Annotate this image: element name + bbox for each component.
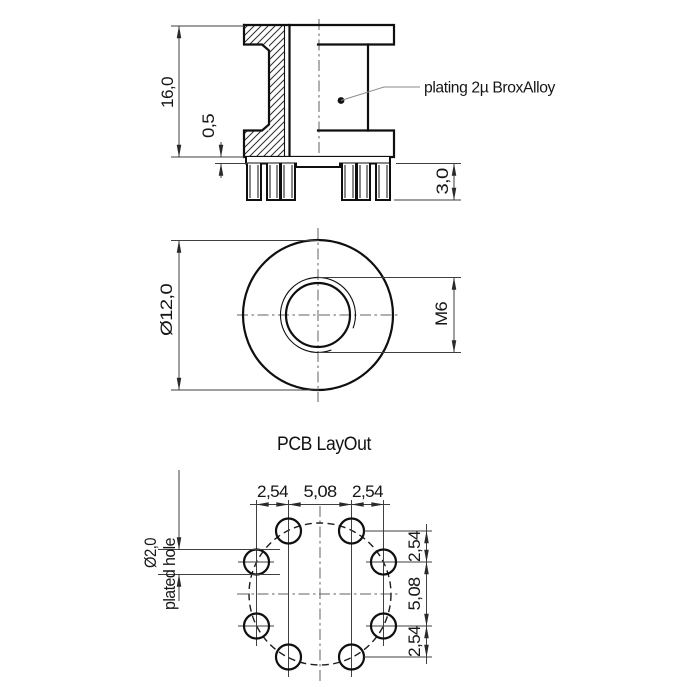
dim-standoff: 0,5: [199, 114, 248, 178]
dim-column-vertical: 2,54 5,08 2,54: [364, 524, 432, 664]
pin: [281, 164, 295, 201]
plating-note-label: plating 2µ BroxAlloy: [424, 80, 555, 97]
drawing-canvas: 16,0 0,5 3,0 plating 2µ BroxAlloy: [0, 0, 700, 700]
dim-thread-label: M6: [432, 302, 451, 326]
hole-type-label: plated hole: [160, 538, 179, 610]
pin-row: [246, 157, 390, 200]
dim-outer-diameter-label: Ø12,0: [157, 284, 176, 336]
top-plan-view: Ø12,0 M6: [157, 228, 461, 402]
dim-v-pitch-bottom: 2,54: [405, 626, 424, 657]
pin: [357, 164, 370, 201]
dim-v-pitch-center: 5,08: [405, 577, 424, 610]
hole-diameter-label: Ø2,0: [141, 538, 160, 568]
dim-h-pitch-right: 2,54: [352, 482, 383, 501]
plating-note: plating 2µ BroxAlloy: [338, 80, 556, 104]
pcb-layout-title: PCB LayOut: [277, 434, 372, 455]
pin: [267, 164, 280, 201]
side-section-view: 16,0 0,5 3,0 plating 2µ BroxAlloy: [158, 19, 555, 200]
pcb-layout-view: PCB LayOut: [141, 434, 432, 683]
dim-standoff-label: 0,5: [199, 114, 218, 138]
dim-v-pitch-top: 2,54: [405, 531, 424, 562]
pin: [342, 164, 356, 201]
dim-h-pitch-left: 2,54: [257, 482, 288, 501]
hole-grid-lines: [238, 500, 400, 677]
pin: [376, 164, 390, 201]
dim-h-pitch-center: 5,08: [304, 482, 337, 501]
dim-pin-length-label: 3,0: [433, 168, 452, 194]
dim-row-horizontal: 2,54 5,08 2,54: [250, 482, 390, 505]
technical-drawing-page: 16,0 0,5 3,0 plating 2µ BroxAlloy: [0, 0, 700, 700]
dim-pin-length: 3,0: [394, 164, 461, 201]
pin: [247, 164, 261, 201]
dim-overall-height-label: 16,0: [158, 77, 177, 108]
